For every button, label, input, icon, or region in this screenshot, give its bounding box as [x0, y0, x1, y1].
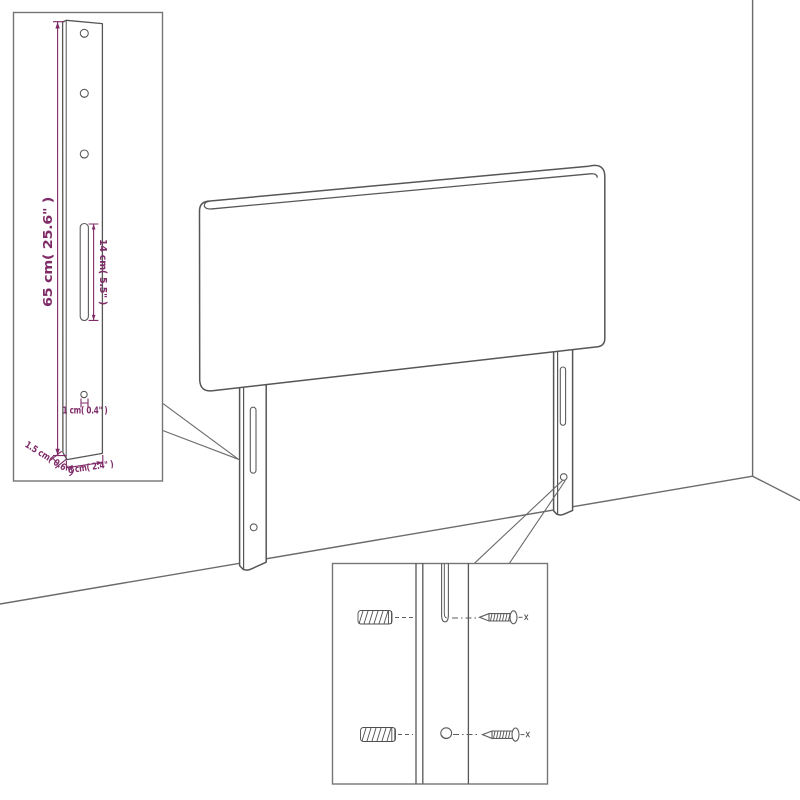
callout-left-line-2: [163, 431, 239, 460]
leg-right-outline: [554, 342, 573, 515]
inset2-box-border: [333, 564, 548, 785]
headboard-leg-right: [554, 342, 573, 515]
callout-left-line-1: [163, 404, 239, 460]
callout-left: [163, 404, 239, 460]
inset-mounting-hardware: [333, 564, 548, 785]
dim-label-leg-height: 65 cm( 25.6" ): [41, 197, 55, 307]
headboard-panel: [200, 165, 605, 391]
inset-leg-dimensions: 65 cm( 25.6" ) 14 cm( 5.5" ) 1 cm( 0.4" …: [14, 13, 163, 482]
dim-label-slot-length: 14 cm( 5.5" ): [97, 239, 108, 305]
headboard-mounting-diagram: 65 cm( 25.6" ) 14 cm( 5.5" ) 1 cm( 0.4" …: [0, 0, 800, 800]
wall-floor-line-right: [753, 476, 800, 500]
product-diagram: 65 cm( 25.6" ) 14 cm( 5.5" ) 1 cm( 0.4" …: [0, 0, 800, 800]
dim-label-hole-width: 1 cm( 0.4" ): [63, 406, 108, 417]
headboard-leg-left: [240, 380, 267, 570]
panel-front-face: [200, 165, 605, 391]
